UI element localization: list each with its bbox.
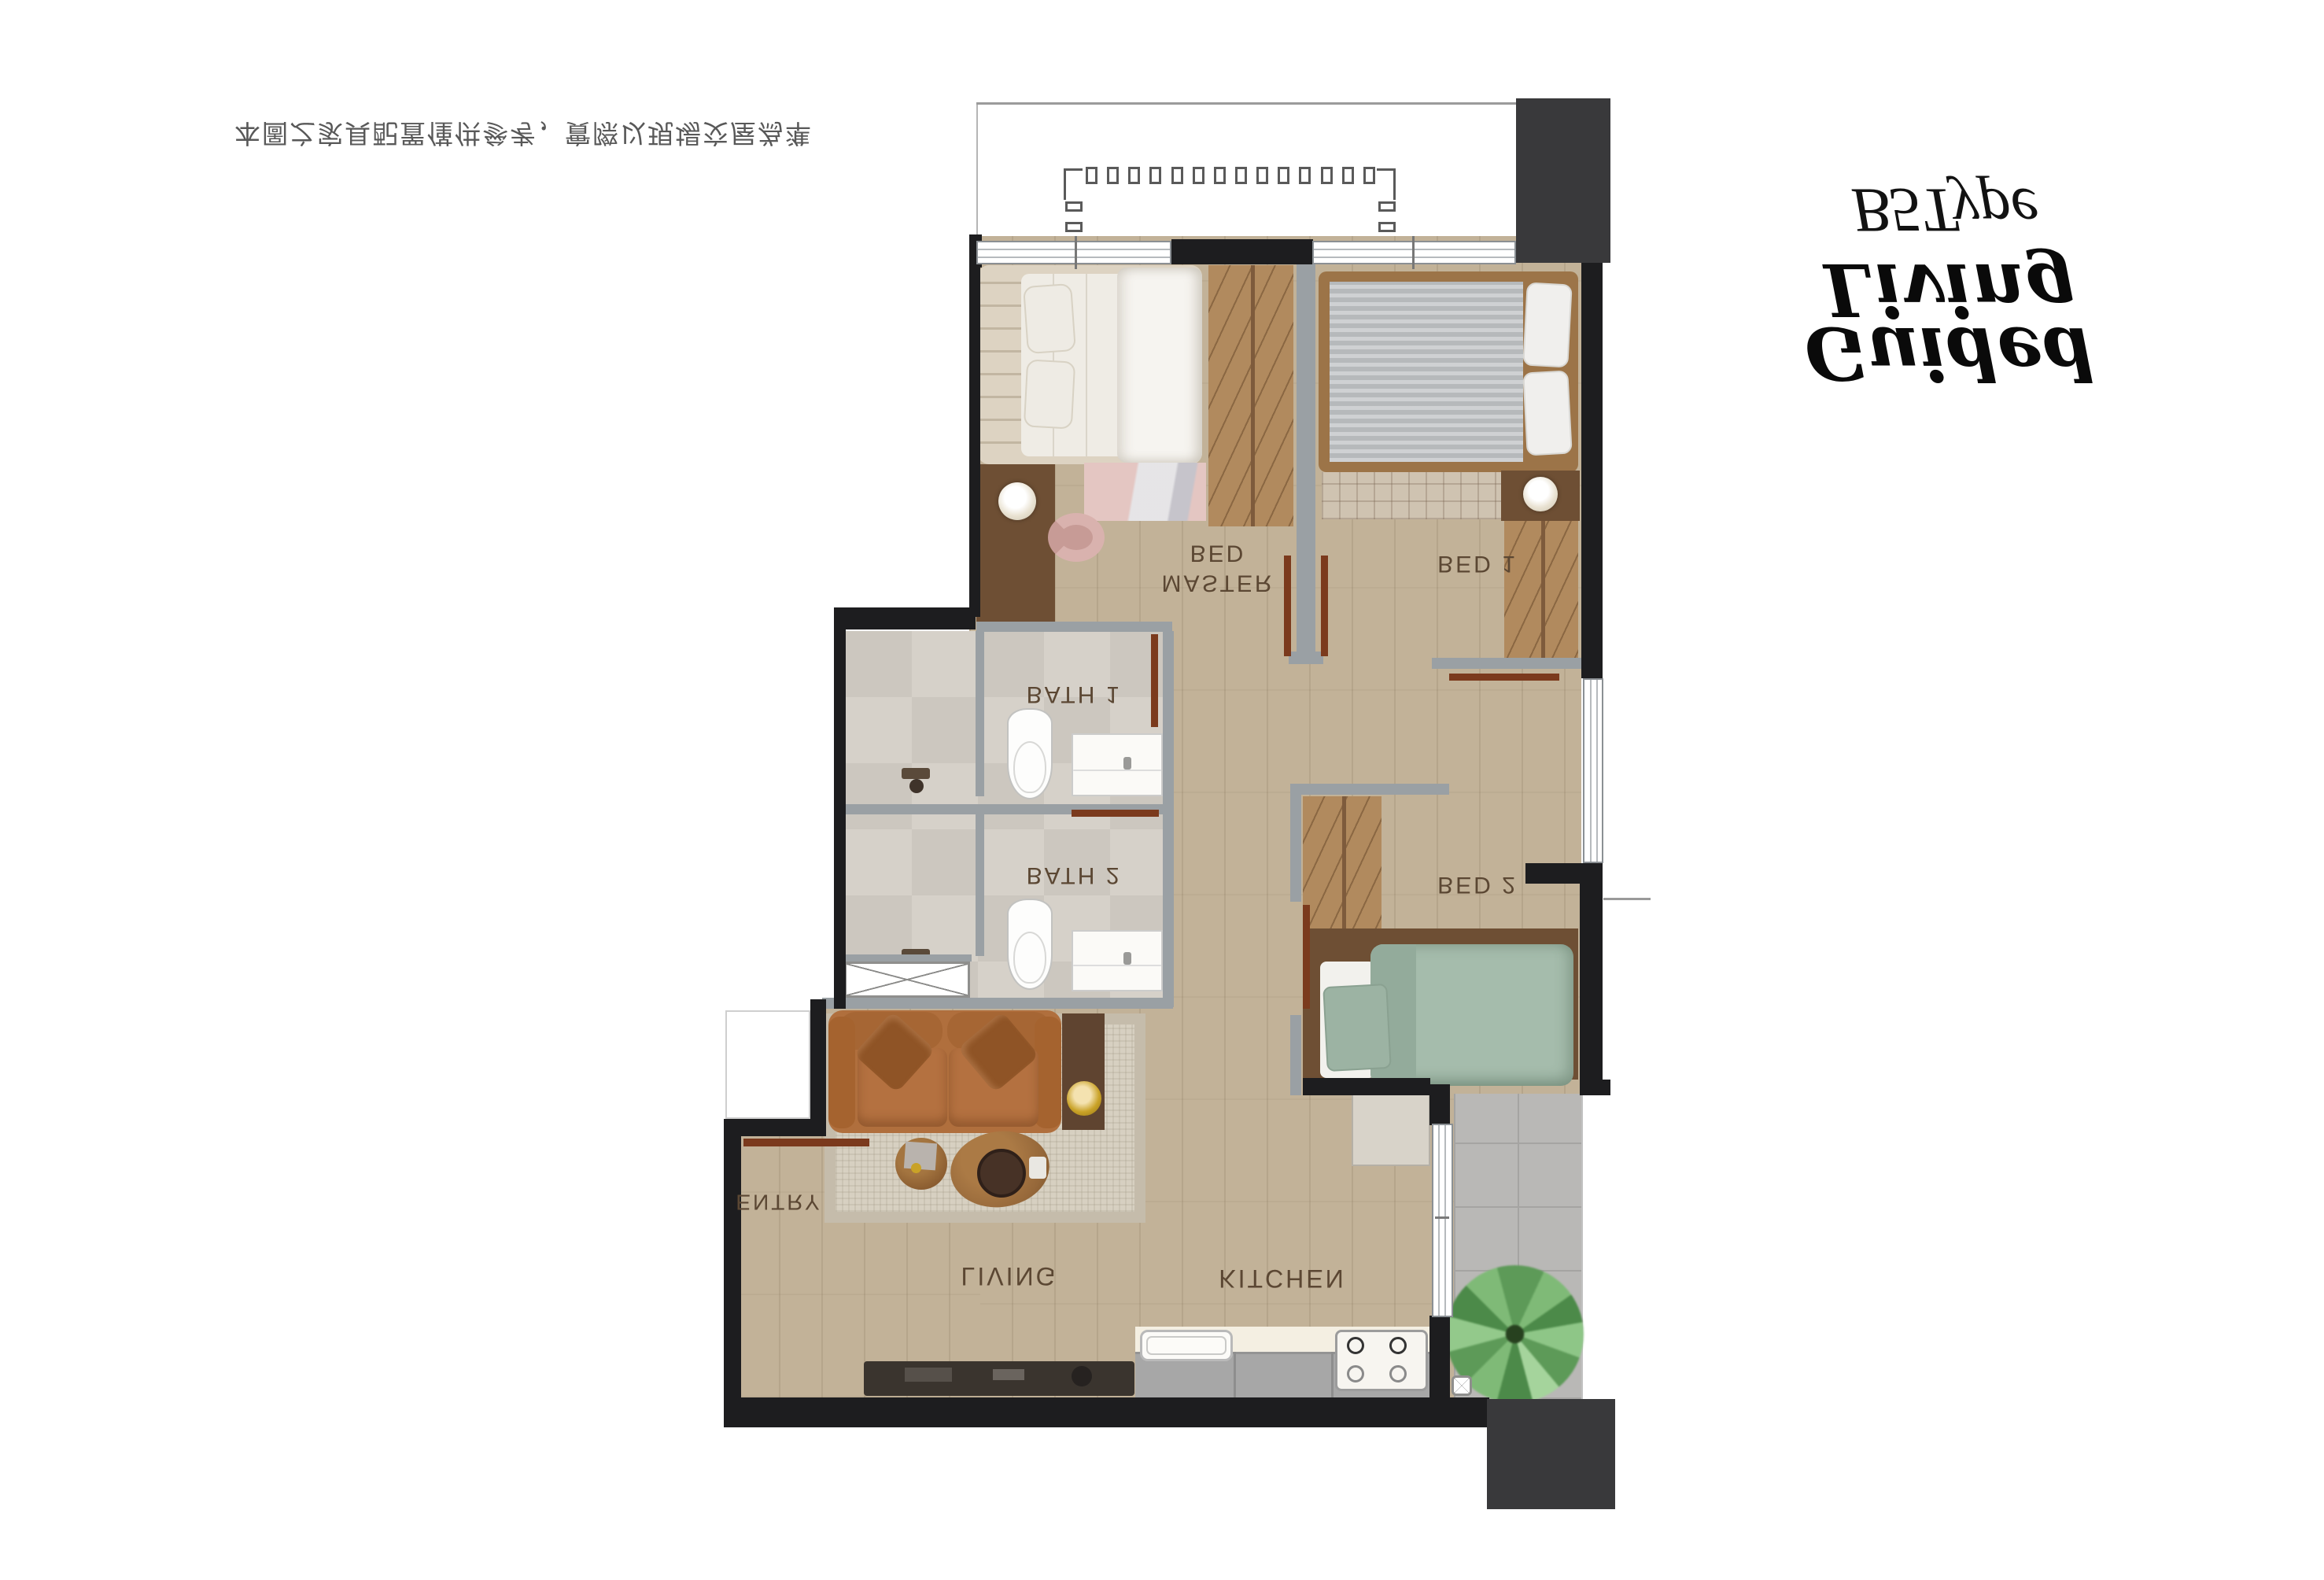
door-leaf-bed1-closet — [1449, 674, 1559, 681]
window-master — [976, 241, 1171, 264]
label-master-line1: MASTER — [1161, 570, 1274, 596]
master-rug — [1084, 463, 1206, 521]
sofa-arm-right — [1035, 1017, 1061, 1128]
wall-block-top-right — [1516, 98, 1610, 263]
sofa-arm-left — [828, 1017, 855, 1128]
coffee-table-cup — [1029, 1157, 1046, 1179]
wall-right-lower — [1580, 863, 1603, 1081]
wall-bath-right — [1163, 631, 1174, 1007]
wall-washer-top — [846, 954, 972, 962]
door-leaf-bed1 — [1321, 556, 1328, 656]
wall-bed2-bottom — [1303, 1078, 1430, 1095]
wall-bath-bottom — [822, 998, 1173, 1009]
unit-type-title: B5Type — [1851, 174, 2038, 245]
wall-right-upper — [1581, 263, 1603, 678]
brand-logo-text: Guided Living — [1805, 257, 2094, 385]
fridge-cabinet — [1352, 1089, 1430, 1166]
wall-master-left — [969, 234, 980, 617]
master-wardrobe — [1208, 265, 1293, 526]
door-leaf-bath2 — [1072, 810, 1159, 817]
wall-bed2-left-lower — [1290, 1015, 1301, 1095]
balcony-railing-strip — [1581, 1094, 1614, 1399]
label-bed1: BED 1 — [1437, 548, 1518, 578]
kitchen-sink — [1140, 1330, 1233, 1361]
label-master-line2: BED — [1190, 541, 1246, 567]
terrace-edge-line — [976, 102, 1518, 105]
window-mullion-left — [1075, 236, 1077, 269]
coffee-table-gold-dot — [911, 1163, 921, 1173]
tv-console-item-1 — [905, 1368, 952, 1382]
door-leaf-bed2 — [1303, 905, 1310, 1009]
bed1-pillow-2 — [1522, 371, 1572, 456]
wall-divider-foot — [1289, 652, 1323, 664]
master-chair — [1048, 513, 1105, 562]
floorplan-page: MASTER BED BED 1 BED 2 BATH 1 BATH 2 LIV… — [0, 0, 2324, 1580]
bath1-toilet — [1007, 708, 1053, 799]
master-pillow-1 — [1023, 283, 1076, 354]
label-entry: ENTRY — [736, 1189, 821, 1216]
bed1-pillow-1 — [1522, 282, 1572, 368]
label-living: LIVING — [961, 1261, 1058, 1292]
disclaimer-text: 本圖之家具配置僅供參考，實際以現場交屋為準 — [234, 116, 813, 154]
door-leaf-master — [1284, 556, 1291, 656]
wall-block-bottom-right — [1487, 1399, 1615, 1509]
window-mullion-right — [1412, 236, 1415, 269]
railing-corner-left — [1064, 168, 1083, 200]
wall-bottom — [736, 1397, 1489, 1427]
wall-bed1-bottom — [1432, 658, 1581, 669]
wall-master-bath — [976, 622, 1172, 632]
railing-dashed-row — [1086, 167, 1375, 184]
bath1-shower-drain — [909, 779, 924, 793]
door-leaf-entry — [743, 1139, 869, 1146]
label-kitchen: KITCHEN — [1219, 1263, 1345, 1294]
entry-closet-void — [725, 1010, 810, 1119]
wall-kitchen-balcony-top — [1429, 1084, 1450, 1125]
wall-bed2-left-upper — [1290, 784, 1301, 902]
washer-box — [844, 962, 970, 998]
label-master-bed: MASTER BED — [1161, 539, 1274, 598]
bath1-shower-fixture — [902, 768, 930, 779]
wall-bath-left — [834, 622, 846, 1009]
tv-console-item-3 — [1072, 1366, 1092, 1386]
master-duvet — [1117, 268, 1202, 463]
label-bath1: BATH 1 — [1027, 679, 1122, 709]
terrace-side-line — [976, 105, 978, 241]
kitchen-cooktop — [1335, 1330, 1428, 1391]
wall-closet-vert — [810, 999, 826, 1135]
wall-void-bottom — [834, 607, 976, 629]
label-bath2: BATH 2 — [1027, 860, 1122, 890]
bed1-wardrobe — [1504, 521, 1578, 661]
wall-divider-master-bed1 — [1297, 263, 1315, 653]
wall-balcony-top-stub — [1580, 1080, 1610, 1095]
wall-left — [724, 1133, 741, 1427]
floor-drain-icon — [1452, 1375, 1472, 1396]
bath2-toilet — [1007, 899, 1053, 990]
wall-window-return — [1525, 863, 1581, 884]
window-right-wall — [1583, 678, 1603, 863]
wall-shower1-partition — [976, 631, 984, 796]
bath2-vanity — [1072, 930, 1163, 991]
wall-shower2-partition — [976, 814, 984, 956]
label-bed2: BED 2 — [1437, 869, 1518, 899]
brand-line2: Living — [1824, 247, 2075, 332]
bath1-vanity — [1072, 733, 1163, 796]
wall-bed2-top — [1290, 784, 1449, 795]
side-table-lamp — [1067, 1081, 1101, 1116]
dimension-tick — [1603, 898, 1651, 900]
coffee-table-bowl — [977, 1149, 1026, 1198]
bed2-pillow — [1322, 984, 1392, 1072]
master-lamp — [998, 482, 1036, 520]
wall-kitchen-balcony-bottom — [1429, 1316, 1450, 1410]
tv-console-item-2 — [993, 1369, 1024, 1380]
bed2-wardrobe — [1303, 796, 1381, 928]
bed1-duvet — [1330, 282, 1523, 462]
master-pillow-2 — [1024, 359, 1075, 429]
bed1-lamp — [1523, 477, 1558, 511]
railing-corner-right — [1377, 168, 1396, 200]
balcony-sliding-door — [1432, 1124, 1453, 1317]
door-leaf-bath1 — [1151, 634, 1158, 727]
wall-top-pier — [1171, 239, 1313, 264]
